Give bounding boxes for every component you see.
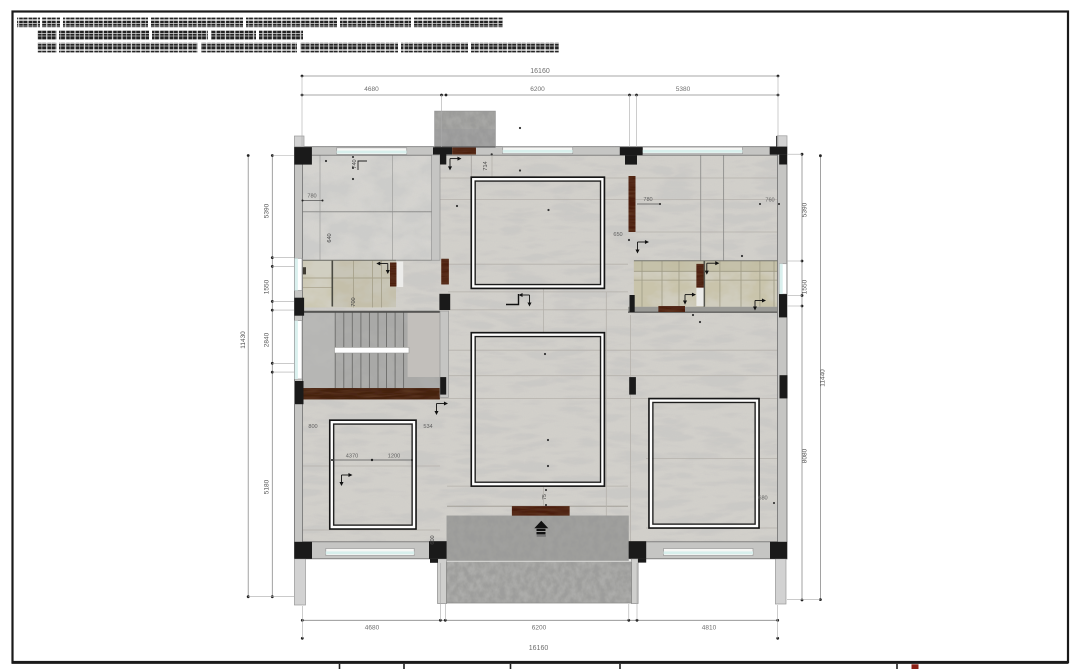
svg-text:6200: 6200 — [530, 86, 545, 93]
svg-text:600: 600 — [430, 535, 436, 544]
svg-text:5390: 5390 — [802, 202, 809, 217]
svg-text:4370: 4370 — [346, 454, 358, 460]
svg-text:6200: 6200 — [532, 625, 547, 632]
svg-text:680: 680 — [758, 496, 767, 502]
svg-text:5380: 5380 — [676, 86, 691, 93]
svg-text:780: 780 — [307, 194, 316, 200]
svg-text:4680: 4680 — [365, 625, 380, 632]
svg-text:5180: 5180 — [264, 479, 271, 494]
svg-text:2840: 2840 — [264, 332, 271, 347]
svg-text:4680: 4680 — [364, 86, 379, 93]
svg-text:640: 640 — [327, 233, 333, 242]
svg-text:4810: 4810 — [702, 625, 717, 632]
svg-text:760: 760 — [765, 198, 774, 204]
svg-text:16160: 16160 — [529, 645, 549, 652]
svg-text:800: 800 — [308, 424, 317, 430]
svg-text:1200: 1200 — [388, 454, 400, 460]
svg-text:8080: 8080 — [802, 448, 809, 463]
svg-text:16160: 16160 — [530, 68, 550, 75]
svg-text:534: 534 — [423, 424, 432, 430]
svg-text:1550: 1550 — [264, 279, 271, 294]
svg-text:11440: 11440 — [820, 369, 827, 387]
svg-text:714: 714 — [483, 161, 489, 170]
svg-text:11430: 11430 — [240, 331, 247, 349]
svg-text:75: 75 — [542, 494, 548, 500]
svg-text:5390: 5390 — [264, 203, 271, 218]
svg-text:700: 700 — [351, 297, 357, 306]
svg-text:780: 780 — [643, 197, 652, 203]
svg-text:650: 650 — [613, 232, 622, 238]
svg-text:1550: 1550 — [802, 279, 809, 294]
